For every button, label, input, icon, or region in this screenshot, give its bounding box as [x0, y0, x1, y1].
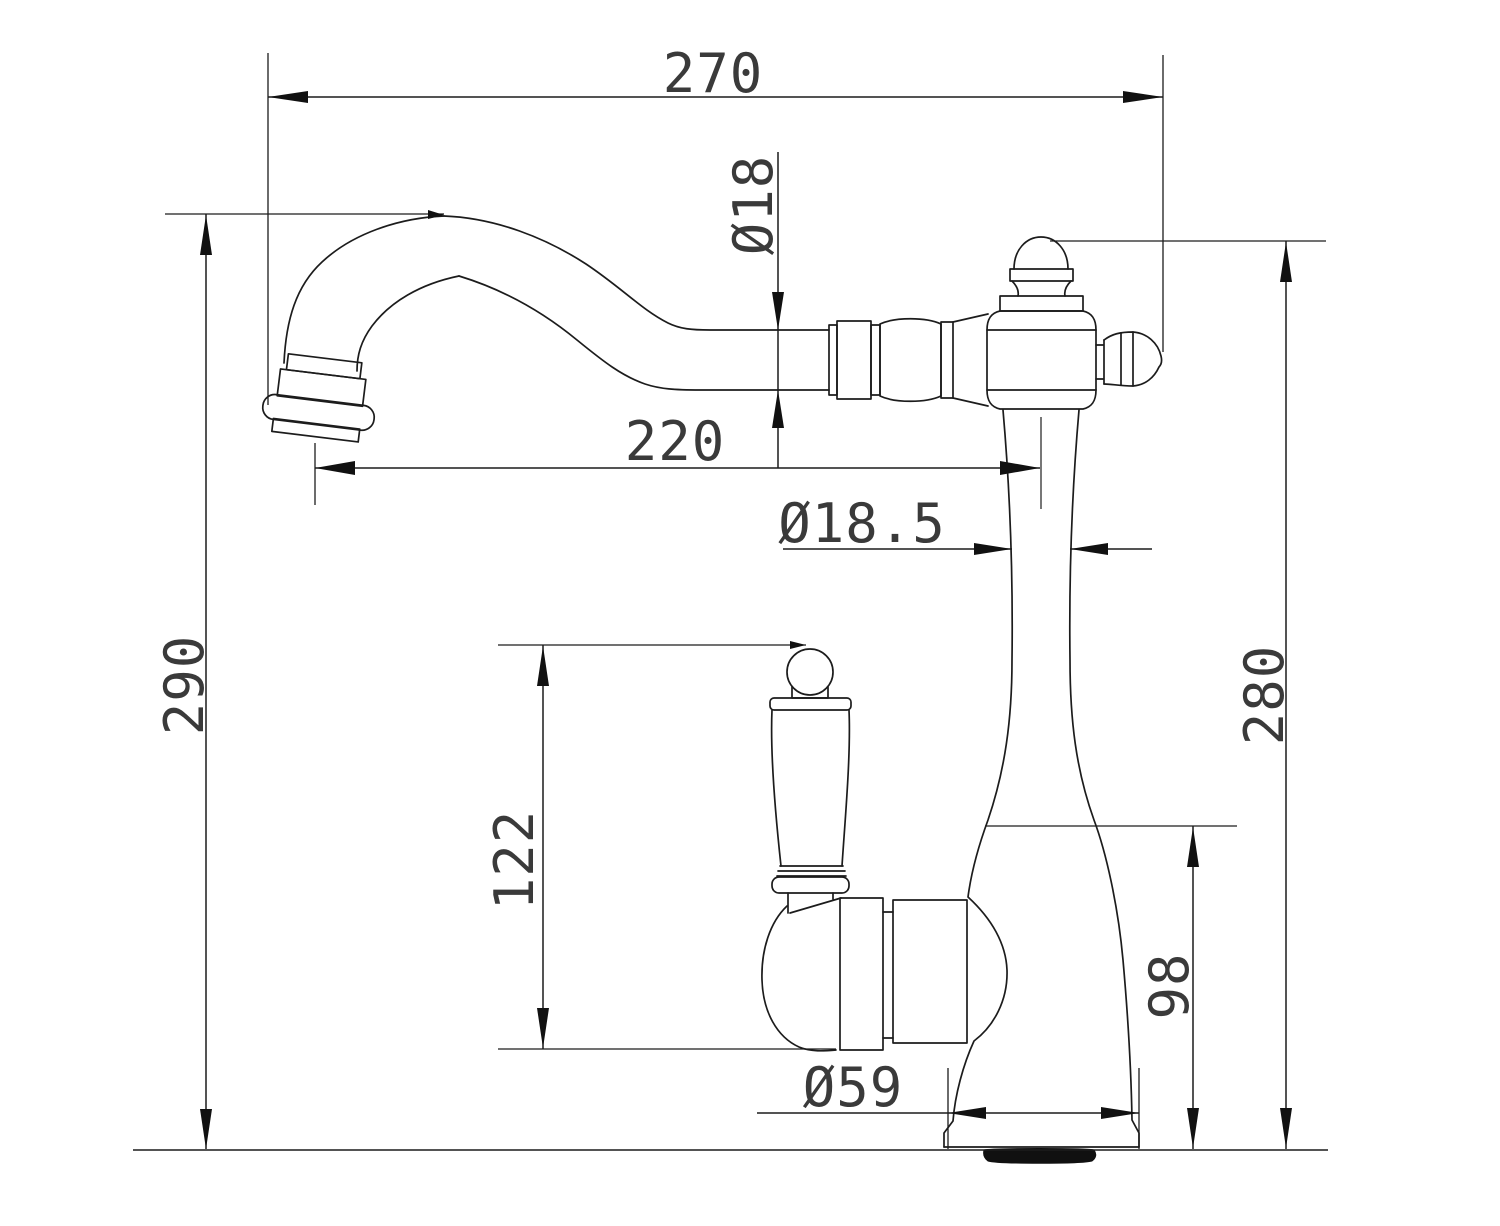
dim-59: Ø59	[757, 1056, 1139, 1149]
handle-lever	[770, 649, 851, 913]
side-knob	[1096, 332, 1162, 386]
dim-98-label: 98	[1138, 952, 1201, 1019]
dim-18-5: Ø18.5	[778, 492, 1152, 555]
valve-housing	[762, 898, 967, 1051]
dim-220: 220	[315, 410, 1040, 505]
dim-290: 290	[153, 210, 444, 1149]
dim-220-label: 220	[625, 410, 726, 473]
drawing-canvas: 270 290 220 Ø18 Ø18.5 122	[0, 0, 1500, 1226]
dim-18-5-label: Ø18.5	[778, 492, 946, 555]
dim-122-label: 122	[483, 810, 546, 911]
dim-122: 122	[483, 641, 836, 1049]
dim-290-label: 290	[153, 635, 216, 736]
dim-270: 270	[268, 42, 1163, 405]
valve-body	[987, 237, 1096, 409]
dim-18: Ø18	[722, 152, 785, 468]
arm-rings	[829, 314, 988, 406]
faucet-dimension-drawing: 270 290 220 Ø18 Ø18.5 122	[0, 0, 1500, 1226]
column-base	[944, 410, 1139, 1163]
dim-270-label: 270	[663, 42, 764, 105]
spout-nozzle	[260, 351, 381, 443]
dim-280-label: 280	[1233, 645, 1296, 746]
faucet-outline	[260, 216, 1162, 1163]
dim-59-label: Ø59	[803, 1056, 904, 1119]
dim-18-label: Ø18	[722, 155, 785, 256]
dim-98: 98	[985, 826, 1237, 1149]
